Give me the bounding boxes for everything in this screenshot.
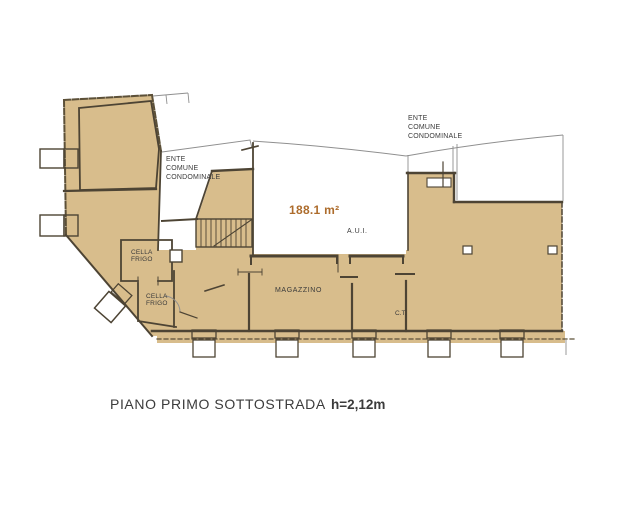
central-courtyard	[253, 141, 406, 254]
label-line: FRIGO	[131, 256, 153, 263]
right-wing-fill	[408, 172, 562, 331]
label-cella-frigo-2: CELLA FRIGO	[146, 293, 168, 308]
label-line: CONDOMINALE	[166, 174, 220, 183]
label-ente-comune-right: ENTE COMUNE CONDOMINALE	[408, 115, 462, 141]
wing-niche	[427, 178, 451, 187]
wall-pillar	[170, 250, 182, 262]
column-2	[548, 246, 557, 254]
label-line: COMUNE	[166, 165, 220, 174]
label-magazzino: MAGAZZINO	[275, 287, 322, 296]
label-aui: A.U.I.	[347, 228, 368, 237]
label-line: ENTE	[408, 115, 462, 124]
plan-title: PIANO PRIMO SOTTOSTRADA	[110, 396, 326, 414]
label-line: ENTE	[166, 156, 220, 165]
boundary-ticks-left	[153, 93, 189, 104]
label-line: COMUNE	[408, 124, 462, 133]
floor-plan-page: ENTE COMUNE CONDOMINALE ENTE COMUNE COND…	[0, 0, 640, 508]
label-line: FRIGO	[146, 300, 168, 307]
floor-plan-drawing	[0, 0, 640, 508]
column-1	[463, 246, 472, 254]
label-line: CELLA	[146, 293, 168, 300]
label-line: CONDOMINALE	[408, 133, 462, 142]
label-cella-frigo-1: CELLA FRIGO	[131, 249, 153, 264]
label-area-value: 188.1 m²	[289, 203, 339, 218]
plan-height-note: h=2,12m	[331, 397, 385, 414]
label-line: CELLA	[131, 249, 153, 256]
label-ente-comune-left: ENTE COMUNE CONDOMINALE	[166, 156, 220, 182]
label-ct: C.T.	[395, 310, 407, 318]
